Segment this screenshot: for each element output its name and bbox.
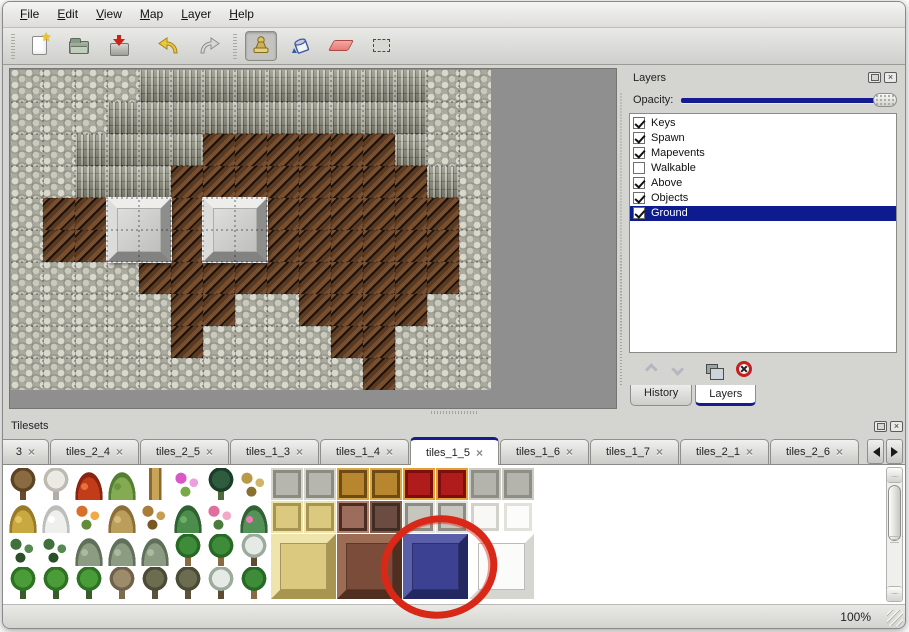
tileset-tile-grass_dry[interactable]	[238, 468, 270, 500]
tileset-tile-wood_table[interactable]	[370, 468, 402, 500]
close-tab-icon[interactable]: ×	[206, 445, 213, 459]
dock-tab-layers[interactable]: Layers	[695, 385, 756, 406]
map-tile[interactable]	[139, 102, 171, 134]
map-tile[interactable]	[427, 294, 459, 326]
map-tile[interactable]	[459, 102, 491, 134]
tileset-tile-tree_gnarl[interactable]	[172, 567, 204, 599]
map-tile[interactable]	[395, 166, 427, 198]
map-tile[interactable]	[235, 134, 267, 166]
open-button[interactable]	[63, 31, 95, 61]
map-tile[interactable]	[43, 326, 75, 358]
app-window: FileEditViewMapLayerHelp ★	[2, 1, 906, 629]
scroll-down-button[interactable]	[887, 586, 902, 601]
map-tile[interactable]	[267, 262, 299, 294]
move-layer-up-button[interactable]	[637, 358, 659, 380]
tileset-tile-carpet_red[interactable]	[436, 468, 468, 500]
map-tile[interactable]	[75, 326, 107, 358]
tileset-tab-bar: 3×tiles_2_4×tiles_2_5×tiles_1_3×tiles_1_…	[3, 436, 905, 465]
tileset-tile-palm_green[interactable]	[238, 567, 270, 599]
layer-buttons	[627, 353, 899, 385]
map-tile[interactable]	[139, 134, 171, 166]
map-block-tile[interactable]	[107, 198, 171, 262]
map-tile[interactable]	[171, 358, 203, 390]
map-tile[interactable]	[107, 166, 139, 198]
close-tab-icon[interactable]: ×	[476, 446, 483, 460]
map-tile[interactable]	[363, 262, 395, 294]
close-tab-icon[interactable]: ×	[656, 445, 663, 459]
redo-button[interactable]	[193, 31, 225, 61]
map-tile[interactable]	[331, 166, 363, 198]
map-tile[interactable]	[427, 326, 459, 358]
tileset-tile-stool[interactable]	[337, 501, 369, 533]
tileset-tab-tiles_2_4[interactable]: tiles_2_4×	[50, 439, 139, 464]
menu-view[interactable]: View	[87, 3, 131, 25]
close-tab-icon[interactable]: ×	[28, 445, 35, 459]
map-tile[interactable]	[235, 102, 267, 134]
layer-visibility-checkbox[interactable]	[633, 117, 645, 129]
tileset-tile-flowers_orange[interactable]	[73, 501, 105, 533]
map-tile[interactable]	[363, 70, 395, 102]
tileset-tile-leaves[interactable]	[139, 501, 171, 533]
map-tile[interactable]	[395, 134, 427, 166]
map-tile[interactable]	[331, 326, 363, 358]
map-tile[interactable]	[331, 134, 363, 166]
map-tile[interactable]	[331, 70, 363, 102]
menu-edit[interactable]: Edit	[48, 3, 87, 25]
toolbar: ★	[3, 28, 905, 65]
resize-grip[interactable]	[887, 610, 903, 626]
map-tile[interactable]	[267, 294, 299, 326]
tileset-tab-tiles_1_7[interactable]: tiles_1_7×	[590, 439, 679, 464]
tileset-tile-lilypad_flower[interactable]	[238, 501, 270, 533]
map-tile[interactable]	[75, 134, 107, 166]
map-tile[interactable]	[427, 262, 459, 294]
menu-bar: FileEditViewMapLayerHelp	[3, 2, 905, 28]
map-tile[interactable]	[171, 102, 203, 134]
map-tile[interactable]	[331, 102, 363, 134]
map-tile[interactable]	[331, 262, 363, 294]
map-tile[interactable]	[235, 326, 267, 358]
map-tile[interactable]	[395, 294, 427, 326]
map-tile[interactable]	[267, 70, 299, 102]
map-tile[interactable]	[235, 70, 267, 102]
tileset-tile-tree_gnarl[interactable]	[139, 567, 171, 599]
map-tile[interactable]	[427, 198, 459, 230]
tileset-tile-white_fringe[interactable]	[469, 501, 501, 533]
tileset-tile-pillar_gray[interactable]	[436, 501, 468, 533]
layer-row-spawn[interactable]: Spawn	[630, 131, 896, 146]
map-tile[interactable]	[75, 230, 107, 262]
map-tile[interactable]	[459, 230, 491, 262]
map-tile[interactable]	[459, 70, 491, 102]
tileset-tile-tree_cone[interactable]	[73, 567, 105, 599]
close-tab-icon[interactable]: ×	[116, 445, 123, 459]
map-tile[interactable]	[363, 230, 395, 262]
map-tile[interactable]	[299, 358, 331, 390]
menu-layer[interactable]: Layer	[172, 3, 220, 25]
map-tile[interactable]	[267, 358, 299, 390]
tileset-tile-wood_table[interactable]	[337, 468, 369, 500]
scroll-up-button[interactable]	[887, 468, 902, 483]
tileset-tile-rose_bush[interactable]	[205, 501, 237, 533]
tileset-tile-lilypad[interactable]	[172, 501, 204, 533]
close-tab-icon[interactable]: ×	[296, 445, 303, 459]
scrollbar-grip	[890, 535, 899, 543]
layer-row-ground[interactable]: Ground	[630, 206, 896, 221]
layer-visibility-checkbox[interactable]	[633, 192, 645, 204]
map-tile[interactable]	[75, 358, 107, 390]
map-tile[interactable]	[43, 230, 75, 262]
chevron-down-icon	[671, 363, 684, 376]
map-tile[interactable]	[43, 262, 75, 294]
map-tile[interactable]	[203, 294, 235, 326]
tileset-tile-tree_bare[interactable]	[7, 468, 39, 500]
tileset-tile-flowers_pink[interactable]	[172, 468, 204, 500]
map-tile[interactable]	[139, 358, 171, 390]
tileset-tab-tiles_1_3[interactable]: tiles_1_3×	[230, 439, 319, 464]
tileset-tile-block_blue[interactable]	[403, 534, 468, 599]
map-tile[interactable]	[43, 102, 75, 134]
map-tile[interactable]	[395, 70, 427, 102]
map-tile[interactable]	[459, 166, 491, 198]
map-tile[interactable]	[203, 134, 235, 166]
map-tile[interactable]	[107, 70, 139, 102]
stamp-tool-icon	[251, 36, 271, 55]
vertical-splitter[interactable]	[617, 68, 625, 409]
layer-name: Mapevents	[651, 147, 705, 159]
map-tile[interactable]	[395, 230, 427, 262]
map-tile[interactable]	[267, 102, 299, 134]
layer-list: KeysSpawnMapeventsWalkableAboveObjectsGr…	[629, 113, 897, 353]
map-tile[interactable]	[267, 198, 299, 230]
toolbar-grip[interactable]	[10, 33, 16, 59]
tileset-tile-carpet_red[interactable]	[403, 468, 435, 500]
tileset-tile-trunk_tan[interactable]	[139, 468, 171, 500]
map-tile[interactable]	[11, 102, 43, 134]
map-tile[interactable]	[171, 262, 203, 294]
map-tile[interactable]	[11, 262, 43, 294]
map-tile[interactable]	[363, 358, 395, 390]
tileset-tile-tree_cone[interactable]	[7, 567, 39, 599]
tileset-tile-sprigs[interactable]	[40, 534, 72, 566]
select-tool-button[interactable]	[365, 31, 397, 61]
map-tile[interactable]	[11, 326, 43, 358]
map-tile[interactable]	[11, 358, 43, 390]
map-tile[interactable]	[43, 358, 75, 390]
opacity-slider[interactable]	[681, 93, 895, 107]
map-tile[interactable]	[11, 134, 43, 166]
map-tile[interactable]	[11, 70, 43, 102]
map-tile[interactable]	[459, 262, 491, 294]
map-tile[interactable]	[107, 294, 139, 326]
layer-row-objects[interactable]: Objects	[630, 191, 896, 206]
map-tile[interactable]	[267, 326, 299, 358]
map-tile[interactable]	[171, 70, 203, 102]
tileset-tile-gold_tile[interactable]	[271, 501, 303, 533]
horizontal-splitter[interactable]	[3, 409, 905, 416]
map-tile[interactable]	[395, 262, 427, 294]
duplicate-layer-button[interactable]	[701, 358, 723, 380]
tileset-tile-tree_snow[interactable]	[40, 468, 72, 500]
tileset-tab-3[interactable]: 3×	[3, 439, 49, 464]
map-block-tile[interactable]	[203, 198, 267, 262]
tileset-tile-stone_tile[interactable]	[271, 468, 303, 500]
map-tile[interactable]	[299, 262, 331, 294]
layer-visibility-checkbox[interactable]	[633, 207, 645, 219]
new-document-icon: ★	[32, 36, 47, 55]
map-tile[interactable]	[203, 358, 235, 390]
map-tile[interactable]	[331, 230, 363, 262]
map-tile[interactable]	[107, 358, 139, 390]
tileset-tab-tiles_2_6[interactable]: tiles_2_6×	[770, 439, 859, 464]
layer-row-mapevents[interactable]: Mapevents	[630, 146, 896, 161]
tileset-tile-tree_twist[interactable]	[106, 567, 138, 599]
undo-arrow-icon	[158, 37, 180, 54]
tileset-tile-block_white[interactable]	[469, 534, 534, 599]
map-tile[interactable]	[139, 262, 171, 294]
map-tile[interactable]	[43, 294, 75, 326]
tileset-tile-bush_gray[interactable]	[139, 534, 171, 566]
tilesets-panel-titlebar: Tilesets ×	[3, 416, 905, 436]
map-tile[interactable]	[267, 134, 299, 166]
scroll-tabs-right-button[interactable]	[886, 439, 903, 464]
map-tile[interactable]	[43, 70, 75, 102]
map-tile[interactable]	[299, 166, 331, 198]
tile-map[interactable]	[11, 70, 491, 390]
map-tile[interactable]	[427, 230, 459, 262]
tileset-tile-bush_gray[interactable]	[73, 534, 105, 566]
map-tile[interactable]	[11, 230, 43, 262]
map-tile[interactable]	[171, 166, 203, 198]
layer-visibility-checkbox[interactable]	[633, 132, 645, 144]
tilesets-panel: Tilesets × 3×tiles_2_4×tiles_2_5×tiles_1…	[3, 416, 905, 604]
map-tile[interactable]	[459, 326, 491, 358]
map-tile[interactable]	[363, 166, 395, 198]
map-tile[interactable]	[107, 262, 139, 294]
map-tile[interactable]	[107, 134, 139, 166]
map-tile[interactable]	[427, 134, 459, 166]
tilesets-panel-title: Tilesets	[11, 420, 49, 432]
map-tile[interactable]	[203, 262, 235, 294]
map-tile[interactable]	[267, 230, 299, 262]
tileset-tile-pillar_gray[interactable]	[403, 501, 435, 533]
tileset-tab-tiles_2_1[interactable]: tiles_2_1×	[680, 439, 769, 464]
tileset-tile-stump_green[interactable]	[106, 468, 138, 500]
float-panel-icon[interactable]	[874, 421, 887, 432]
opacity-slider-handle[interactable]	[873, 93, 897, 107]
menu-map[interactable]: Map	[131, 3, 172, 25]
map-tile[interactable]	[203, 166, 235, 198]
map-tile[interactable]	[107, 326, 139, 358]
menu-help[interactable]: Help	[220, 3, 263, 25]
close-panel-icon[interactable]: ×	[890, 421, 903, 432]
eraser-icon	[328, 40, 354, 51]
tileset-tab-label: tiles_1_6	[516, 446, 560, 458]
scrollbar-thumb[interactable]	[888, 485, 901, 541]
map-tile[interactable]	[459, 358, 491, 390]
close-tab-icon[interactable]: ×	[386, 445, 393, 459]
map-tile[interactable]	[171, 198, 203, 230]
map-tile[interactable]	[171, 230, 203, 262]
new-map-button[interactable]: ★	[23, 31, 55, 61]
map-tile[interactable]	[235, 358, 267, 390]
tileset-tile-panel_dark[interactable]	[370, 501, 402, 533]
map-tile[interactable]	[107, 102, 139, 134]
tileset-tile-tree_cone[interactable]	[40, 567, 72, 599]
map-tile[interactable]	[11, 294, 43, 326]
map-tile[interactable]	[267, 166, 299, 198]
tileset-tile-palm_dark[interactable]	[205, 468, 237, 500]
tileset-tile-mound_hay[interactable]	[7, 501, 39, 533]
map-tile[interactable]	[331, 358, 363, 390]
map-tile[interactable]	[139, 326, 171, 358]
tileset-tile-concrete[interactable]	[469, 468, 501, 500]
map-tile[interactable]	[459, 294, 491, 326]
map-tile[interactable]	[171, 326, 203, 358]
menu-file[interactable]: File	[11, 3, 48, 25]
map-tile[interactable]	[75, 166, 107, 198]
map-tile[interactable]	[139, 294, 171, 326]
close-tab-icon[interactable]: ×	[746, 445, 753, 459]
map-tile[interactable]	[427, 358, 459, 390]
close-tab-icon[interactable]: ×	[566, 445, 573, 459]
tileset-tile-gold_tile[interactable]	[304, 501, 336, 533]
layer-visibility-checkbox[interactable]	[633, 177, 645, 189]
map-tile[interactable]	[395, 358, 427, 390]
map-tile[interactable]	[75, 294, 107, 326]
layer-name: Keys	[651, 117, 675, 129]
map-tile[interactable]	[75, 198, 107, 230]
duplicate-icon	[706, 364, 718, 374]
undo-button[interactable]	[153, 31, 185, 61]
fill-tool-button[interactable]	[285, 31, 317, 61]
layer-row-above[interactable]: Above	[630, 176, 896, 191]
map-tile[interactable]	[299, 230, 331, 262]
panel-tabs: HistoryLayers	[627, 385, 899, 409]
eraser-tool-button[interactable]	[325, 31, 357, 61]
tileset-tile-mound_snow[interactable]	[40, 501, 72, 533]
map-tile[interactable]	[203, 102, 235, 134]
map-tile[interactable]	[363, 294, 395, 326]
map-tile[interactable]	[75, 262, 107, 294]
map-tile[interactable]	[299, 102, 331, 134]
tileset-scrollbar[interactable]	[886, 467, 903, 602]
tileset-tab-label: tiles_1_5	[426, 447, 470, 459]
tileset-tile-concrete[interactable]	[502, 468, 534, 500]
map-tile[interactable]	[299, 294, 331, 326]
layer-visibility-checkbox[interactable]	[633, 162, 645, 174]
tileset-tab-tiles_1_4[interactable]: tiles_1_4×	[320, 439, 409, 464]
map-tile[interactable]	[139, 70, 171, 102]
map-tile[interactable]	[427, 70, 459, 102]
map-tile[interactable]	[75, 102, 107, 134]
map-canvas[interactable]	[9, 68, 617, 409]
float-panel-icon[interactable]	[868, 72, 881, 83]
map-tile[interactable]	[331, 198, 363, 230]
map-tile[interactable]	[235, 166, 267, 198]
map-tile[interactable]	[43, 198, 75, 230]
tileset-tile-table_big[interactable]	[337, 534, 402, 599]
map-tile[interactable]	[299, 70, 331, 102]
tileset-tile-pine_snow[interactable]	[205, 567, 237, 599]
tileset-tile-white_tile[interactable]	[502, 501, 534, 533]
map-tile[interactable]	[459, 134, 491, 166]
map-tile[interactable]	[171, 294, 203, 326]
map-tile[interactable]	[427, 166, 459, 198]
tileset-tab-tiles_2_5[interactable]: tiles_2_5×	[140, 439, 229, 464]
map-tile[interactable]	[299, 134, 331, 166]
layer-row-keys[interactable]: Keys	[630, 116, 896, 131]
map-tile[interactable]	[235, 262, 267, 294]
map-tile[interactable]	[299, 198, 331, 230]
tileset-tab-tiles_1_5[interactable]: tiles_1_5×	[410, 437, 499, 465]
map-tile[interactable]	[299, 326, 331, 358]
map-tile[interactable]	[75, 70, 107, 102]
map-tile[interactable]	[11, 166, 43, 198]
map-tile[interactable]	[43, 134, 75, 166]
layer-name: Objects	[651, 192, 688, 204]
map-tile[interactable]	[395, 102, 427, 134]
map-tile[interactable]	[235, 294, 267, 326]
map-tile[interactable]	[363, 134, 395, 166]
opacity-row: Opacity:	[627, 88, 899, 112]
map-tile[interactable]	[203, 70, 235, 102]
star-icon: ★	[41, 30, 52, 44]
delete-layer-button[interactable]	[733, 358, 755, 380]
tileset-tab-label: tiles_2_5	[156, 446, 200, 458]
map-tile[interactable]	[395, 326, 427, 358]
close-tab-icon[interactable]: ×	[836, 445, 843, 459]
map-tile[interactable]	[331, 294, 363, 326]
close-panel-icon[interactable]: ×	[884, 72, 897, 83]
layer-row-walkable[interactable]: Walkable	[630, 161, 896, 176]
tileset-tile-stone_tile[interactable]	[304, 468, 336, 500]
map-tile[interactable]	[427, 102, 459, 134]
tileset-tile-palm_green[interactable]	[205, 534, 237, 566]
tileset-tile-flower_red[interactable]	[73, 468, 105, 500]
map-tile[interactable]	[459, 198, 491, 230]
layer-name: Walkable	[651, 162, 696, 174]
tileset-tile-gold_big[interactable]	[271, 534, 336, 599]
status-bar: 100%	[3, 604, 905, 628]
tileset-tile-bush_gray[interactable]	[106, 534, 138, 566]
map-tile[interactable]	[395, 198, 427, 230]
map-tile[interactable]	[363, 326, 395, 358]
map-tile[interactable]	[43, 166, 75, 198]
tileset-tile-bush_dry[interactable]	[106, 501, 138, 533]
move-layer-down-button[interactable]	[669, 358, 691, 380]
map-tile[interactable]	[171, 134, 203, 166]
tileset-tile-palm_green[interactable]	[172, 534, 204, 566]
map-tile[interactable]	[363, 198, 395, 230]
stamp-tool-button[interactable]	[245, 31, 277, 61]
tileset-tile-sprigs[interactable]	[7, 534, 39, 566]
map-tile[interactable]	[139, 166, 171, 198]
tileset-tile-pine_snow[interactable]	[238, 534, 270, 566]
opacity-slider-track	[681, 98, 895, 103]
map-tile[interactable]	[11, 198, 43, 230]
save-button[interactable]	[103, 31, 135, 61]
toolbar-grip[interactable]	[232, 33, 238, 59]
scroll-tabs-left-button[interactable]	[867, 439, 884, 464]
tileset-tab-label: tiles_2_6	[786, 446, 830, 458]
layer-visibility-checkbox[interactable]	[633, 147, 645, 159]
tileset-tab-tiles_1_6[interactable]: tiles_1_6×	[500, 439, 589, 464]
dock-tab-history[interactable]: History	[630, 385, 692, 406]
map-tile[interactable]	[363, 102, 395, 134]
tileset-content[interactable]	[3, 465, 905, 604]
map-tile[interactable]	[203, 326, 235, 358]
